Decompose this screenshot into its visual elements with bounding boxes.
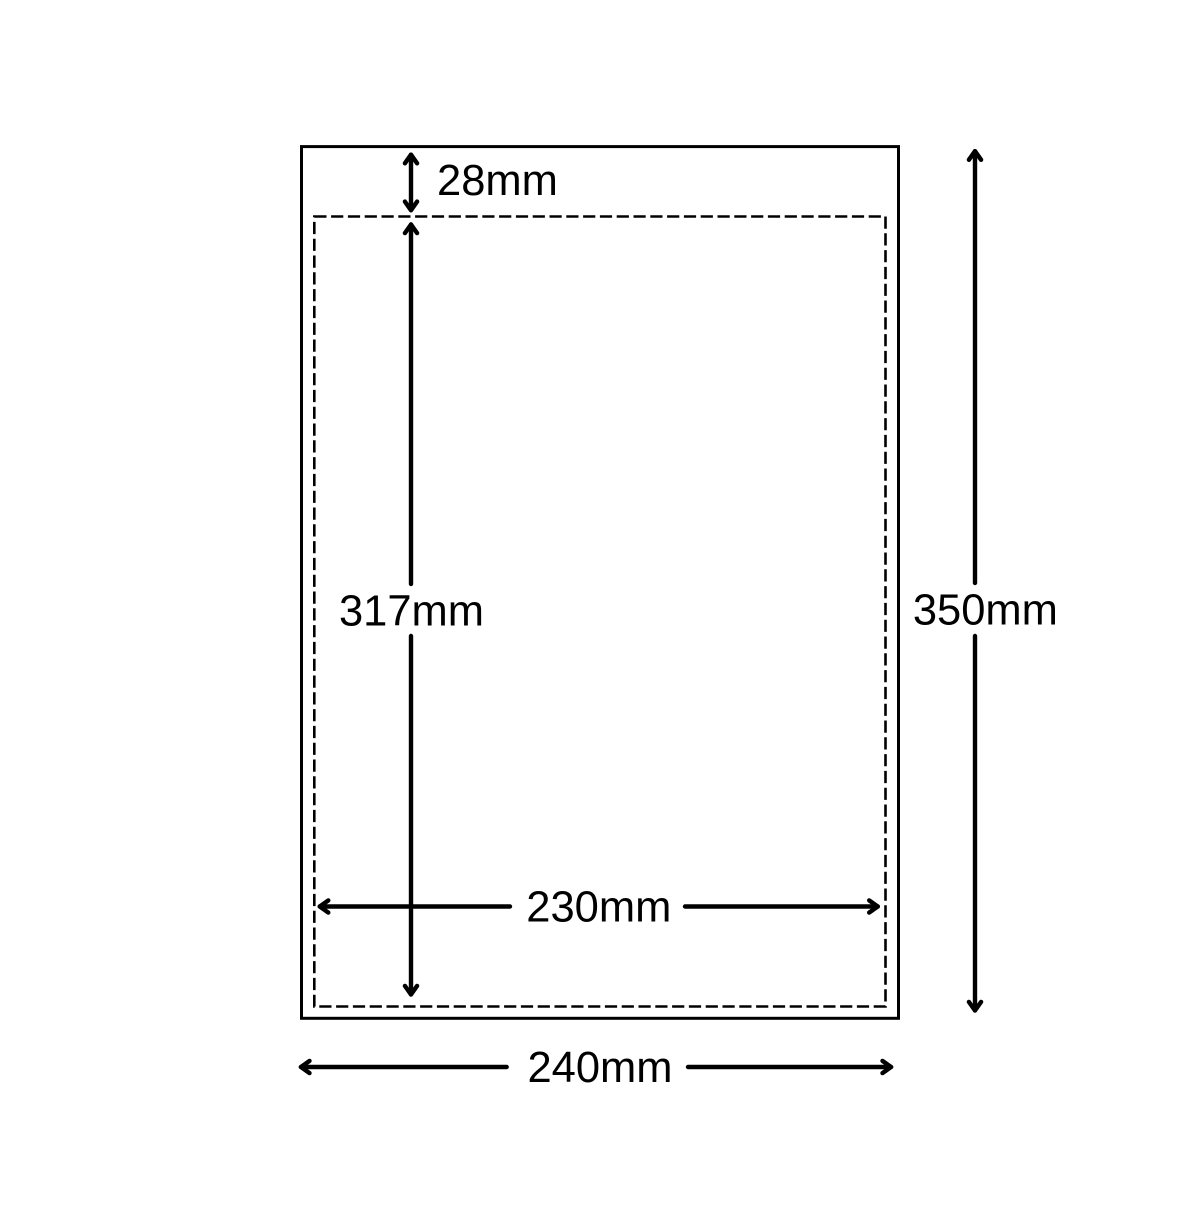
svg-text:350mm: 350mm: [913, 587, 1058, 635]
svg-text:317mm: 317mm: [339, 588, 484, 636]
svg-text:230mm: 230mm: [526, 884, 671, 932]
svg-text:240mm: 240mm: [527, 1044, 672, 1092]
svg-text:28mm: 28mm: [437, 157, 558, 205]
